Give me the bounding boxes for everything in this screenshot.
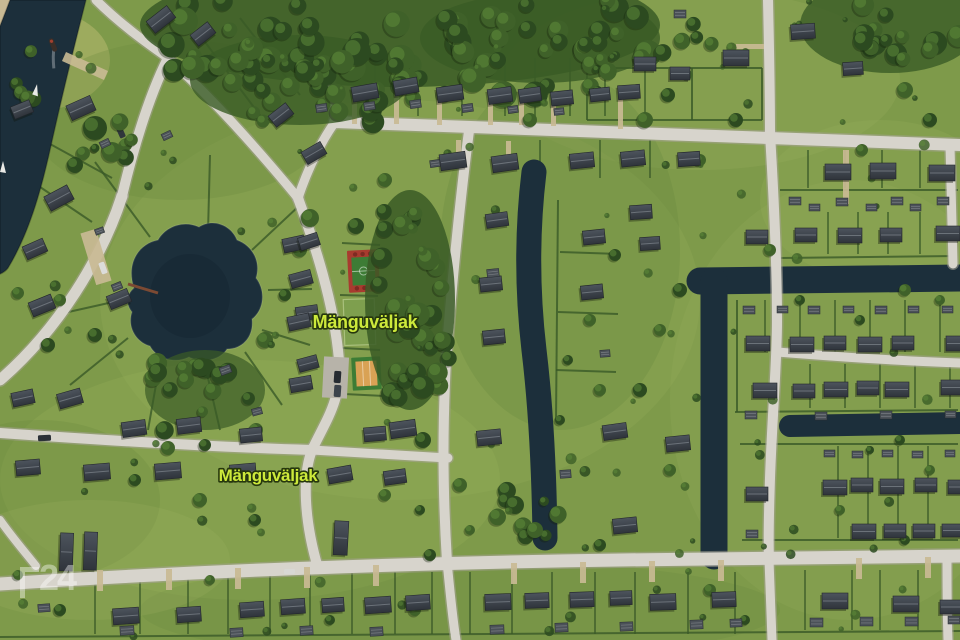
house-roof: [13, 459, 40, 478]
house-roof: [477, 276, 503, 294]
garden-shed: [690, 620, 703, 629]
garden-shed: [882, 450, 893, 457]
house-roof: [823, 164, 851, 182]
house-roof: [944, 336, 960, 353]
house-roof: [789, 23, 816, 42]
house-roof: [174, 417, 202, 437]
house-roof: [152, 462, 181, 482]
house-roof: [663, 435, 691, 455]
garden-shed: [363, 101, 375, 110]
garden-shed: [815, 412, 827, 420]
garden-shed: [620, 622, 633, 631]
house-roof: [822, 382, 848, 399]
house-roof: [618, 150, 646, 170]
garden-shed: [948, 616, 960, 624]
house-roof: [882, 524, 906, 540]
house-roof: [913, 478, 937, 494]
garden-shed: [809, 204, 820, 211]
house-roof: [878, 228, 902, 244]
house-roof: [616, 84, 641, 102]
house-roof: [580, 229, 606, 247]
house-roof: [81, 463, 110, 483]
house-roof: [939, 380, 960, 397]
house-roof: [890, 336, 914, 352]
garden-shed: [937, 197, 949, 205]
garden-shed: [912, 451, 923, 458]
garden-shed: [600, 350, 610, 358]
garden-shed: [945, 411, 956, 418]
house-roof: [608, 591, 633, 608]
garden-shed: [777, 306, 788, 313]
garden-shed: [746, 530, 758, 538]
house-roof: [791, 384, 815, 400]
house-roof: [788, 337, 814, 354]
house-roof: [175, 606, 202, 625]
house-roof: [820, 593, 848, 611]
house-roof: [721, 50, 749, 68]
garden-shed: [409, 99, 421, 108]
house-roof: [850, 524, 876, 541]
garden-shed: [120, 626, 134, 636]
house-roof: [362, 596, 391, 616]
house-roof: [710, 592, 737, 610]
house-roof: [668, 67, 690, 82]
house-roof: [628, 204, 653, 222]
house-roof: [849, 478, 873, 494]
house-roof: [320, 597, 345, 615]
house-roof: [483, 212, 509, 231]
garden-shed: [843, 306, 854, 313]
garden-shed: [370, 627, 383, 637]
house-roof: [946, 480, 960, 496]
house-roof: [404, 594, 431, 613]
garden-shed: [745, 411, 757, 419]
garden-shed: [905, 617, 918, 626]
house-roof: [938, 600, 960, 616]
garden-shed: [230, 628, 243, 638]
house-roof: [600, 422, 628, 442]
garden-shed: [910, 204, 921, 211]
garden-shed: [38, 604, 51, 613]
house-roof: [855, 381, 879, 397]
house-roof: [474, 429, 502, 449]
garden-shed: [300, 626, 313, 636]
garden-shed: [880, 411, 892, 419]
house-roof: [119, 419, 147, 439]
garden-shed: [810, 618, 823, 627]
house-roof: [744, 487, 768, 503]
house-roof: [751, 383, 777, 400]
garden-shed: [555, 623, 568, 632]
house-roof: [878, 479, 904, 496]
playground-label-upper: Mänguväljak: [313, 312, 419, 332]
house-roof: [568, 592, 595, 610]
house-roof: [891, 596, 919, 614]
house-roof: [638, 236, 661, 252]
house-roof: [821, 480, 847, 497]
house-roof: [279, 598, 306, 617]
house-roof: [632, 57, 656, 73]
house-roof: [744, 230, 768, 246]
house-roof: [110, 607, 139, 627]
house-roof: [793, 228, 817, 244]
house-roof: [238, 601, 265, 620]
house-roof: [485, 86, 513, 106]
house-roof: [822, 336, 846, 352]
garden-shed: [942, 306, 953, 313]
garden-shed: [866, 204, 877, 211]
garden-shed: [875, 306, 887, 314]
garden-shed: [836, 198, 848, 206]
garden-shed: [789, 197, 801, 205]
garden-shed: [743, 306, 755, 314]
house-roof: [523, 593, 550, 611]
masterplan-aerial-map: Mänguväljak Mänguväljak 24: [0, 0, 960, 640]
house-roof: [610, 517, 638, 537]
garden-shed: [808, 306, 820, 314]
house-roof: [927, 165, 955, 183]
garden-shed: [891, 197, 903, 205]
garden-shed: [490, 625, 504, 634]
house-roof: [567, 152, 595, 172]
house-roof: [841, 61, 864, 77]
garden-shed: [560, 470, 572, 479]
house-roof: [744, 336, 770, 353]
house-roof: [868, 163, 896, 181]
garden-shed: [860, 617, 873, 626]
house-roof: [883, 382, 909, 399]
garden-shed: [430, 159, 441, 167]
house-roof: [676, 151, 701, 169]
house-roof: [480, 329, 506, 347]
house-roof: [836, 228, 862, 245]
house-roof: [483, 594, 512, 613]
garden-shed: [852, 451, 863, 458]
house-roof: [911, 524, 935, 540]
house-roof: [578, 284, 604, 302]
house-roof: [361, 426, 386, 444]
house-roof: [57, 533, 73, 573]
map-canvas: Mänguväljak Mänguväljak: [0, 0, 960, 640]
house-roof: [940, 524, 960, 539]
house-roof: [856, 337, 882, 354]
garden-shed: [461, 103, 473, 112]
house-roof: [587, 87, 610, 104]
house-roof: [331, 521, 349, 558]
house-roof: [548, 90, 574, 108]
house-roof: [516, 87, 542, 106]
house-roof: [648, 594, 677, 613]
house-roof: [237, 427, 263, 445]
garden-shed: [508, 105, 519, 113]
garden-shed: [554, 107, 565, 115]
house-roof: [934, 226, 960, 243]
garden-shed: [730, 619, 742, 627]
garden-shed: [315, 103, 327, 112]
garden-shed: [674, 10, 686, 18]
garden-shed: [824, 450, 835, 457]
house-roof: [381, 469, 407, 488]
house-roof: [81, 532, 97, 572]
garden-shed: [908, 306, 919, 313]
garden-shed: [487, 268, 500, 277]
playground-label-lower: Mänguväljak: [219, 466, 319, 485]
garden-shed: [945, 450, 955, 457]
